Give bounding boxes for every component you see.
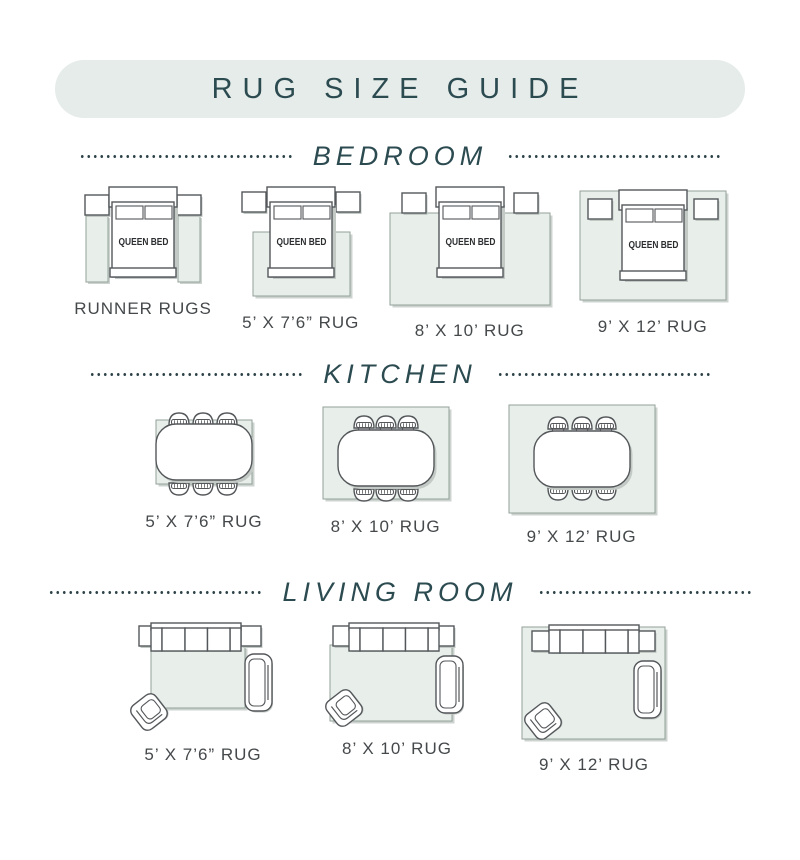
dotted-divider-left [79, 155, 293, 158]
kitchen-figure-9x12: 9’ X 12’ RUG [509, 405, 655, 547]
runner-rug-left [86, 216, 108, 282]
dotted-divider-left [89, 373, 303, 376]
rug-size-label: 9’ X 12’ RUG [598, 317, 708, 337]
rug-swatch [151, 646, 245, 708]
living-room-row: 5’ X 7’6” RUG 8’ X 10’ RUG [0, 623, 800, 775]
kitchen-figure-8x10: 8’ X 10’ RUG [323, 405, 449, 537]
dotted-divider-right [507, 155, 721, 158]
living-9x12-diagram [521, 623, 667, 741]
kitchen-figure-5x76: 5’ X 7’6” RUG [145, 412, 262, 532]
section-header-kitchen: KITCHEN [0, 357, 800, 391]
rug-size-label: 5’ X 7’6” RUG [242, 313, 359, 333]
living-figure-8x10: 8’ X 10’ RUG [328, 623, 466, 759]
rug-size-label: RUNNER RUGS [74, 299, 212, 319]
section-header-living-room: LIVING ROOM [0, 575, 800, 609]
rug-size-label: 8’ X 10’ RUG [331, 517, 441, 537]
living-5x76-diagram [133, 623, 273, 731]
rug-size-label: 9’ X 12’ RUG [527, 527, 637, 547]
bedroom-row: RUNNER RUGS 5’ X 7’6” RUG 8’ X 10’ RUG [0, 187, 800, 341]
rug-size-label: 5’ X 7’6” RUG [144, 745, 261, 765]
dotted-divider-right [497, 373, 711, 376]
bedroom-figure-runner-rugs: RUNNER RUGS [74, 187, 212, 319]
rug-size-guide-page: RUG SIZE GUIDE BEDROOM RUNNER RUGS [0, 60, 800, 860]
title-banner: RUG SIZE GUIDE [55, 60, 745, 118]
section-heading-kitchen: KITCHEN [303, 359, 497, 390]
kitchen-row: 5’ X 7’6” RUG 8’ X 10’ RUG [0, 405, 800, 547]
dotted-divider-left [48, 591, 262, 594]
living-8x10-diagram [328, 623, 466, 725]
bedroom-figure-5x76: 5’ X 7’6” RUG [242, 187, 360, 333]
living-figure-5x76: 5’ X 7’6” RUG [133, 623, 273, 765]
living-figure-9x12: 9’ X 12’ RUG [521, 623, 667, 775]
rug-size-label: 8’ X 10’ RUG [342, 739, 452, 759]
kitchen-8x10-diagram [323, 405, 449, 503]
runner-rug-right [178, 216, 200, 282]
bedroom-8x10-diagram [390, 187, 550, 307]
page-title: RUG SIZE GUIDE [212, 73, 589, 106]
section-heading-bedroom: BEDROOM [293, 141, 508, 172]
section-header-bedroom: BEDROOM [0, 139, 800, 173]
bedroom-figure-8x10: 8’ X 10’ RUG [390, 187, 550, 341]
rug-size-label: 9’ X 12’ RUG [539, 755, 649, 775]
kitchen-9x12-diagram [509, 405, 655, 513]
bedroom-figure-9x12: 9’ X 12’ RUG [580, 187, 726, 337]
rug-size-label: 8’ X 10’ RUG [415, 321, 525, 341]
bedroom-5x76-diagram [242, 187, 360, 299]
rug-size-label: 5’ X 7’6” RUG [145, 512, 262, 532]
bedroom-9x12-diagram [580, 187, 726, 303]
kitchen-5x76-diagram [155, 412, 253, 498]
bedroom-runner-diagram [85, 187, 201, 285]
dotted-divider-right [538, 591, 752, 594]
section-heading-living-room: LIVING ROOM [262, 577, 537, 608]
